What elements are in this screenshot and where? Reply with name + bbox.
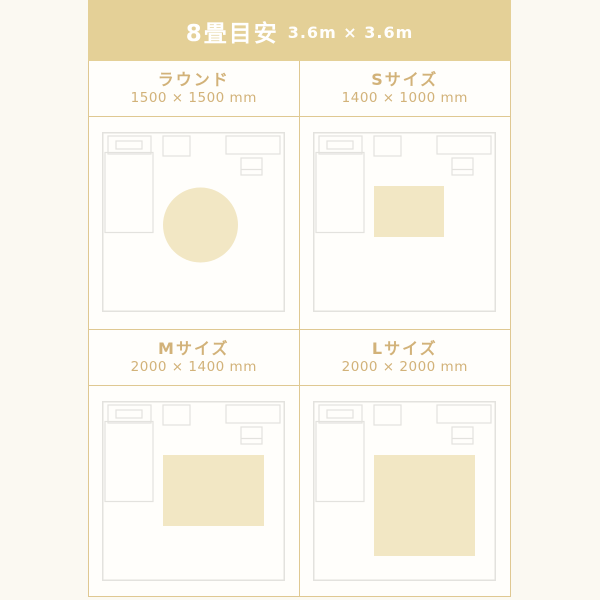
room-floorplan [102,132,285,312]
size-label: Sサイズ [371,71,438,89]
rug-shape-l [374,455,475,556]
page-background: { "header": { "title": "8畳目安", "room_dim… [0,0,600,600]
size-cell-round: ラウンド 1500 × 1500 mm [89,61,300,330]
rug-shape-round [163,188,238,263]
room-floorplan [313,132,496,312]
size-dimensions: 1400 × 1000 mm [342,90,468,106]
desk-shape [437,136,491,154]
desk-shape [226,405,280,423]
chair-shape [452,158,473,175]
size-label: Lサイズ [372,340,438,358]
cell-header-m: Mサイズ 2000 × 1400 mm [89,330,299,386]
headboard-shape [108,405,151,423]
chair-shape [241,158,262,175]
room-diagram-s [300,117,511,329]
chair-shape [241,427,262,444]
room-floorplan [102,401,285,581]
size-dimensions: 2000 × 2000 mm [342,359,468,375]
tatami-header-band: 8畳目安 3.6m × 3.6m [88,0,511,61]
cell-header-round: ラウンド 1500 × 1500 mm [89,61,299,117]
size-dimensions: 2000 × 1400 mm [131,359,257,375]
pillow-shape [116,410,142,418]
room-floorplan [313,401,496,581]
bed-shape [316,422,364,502]
size-label: ラウンド [158,71,230,89]
pillow-shape [327,141,353,149]
rug-shape-s [374,186,444,237]
size-cell-s: Sサイズ 1400 × 1000 mm [300,61,511,330]
cabinet-shape [163,136,190,156]
rug-size-guide-panel: 8畳目安 3.6m × 3.6m ラウンド 1500 × 1500 mm Sサイ… [88,0,511,597]
room-diagram-m [89,386,299,596]
size-dimensions: 1500 × 1500 mm [131,90,257,106]
desk-shape [437,405,491,423]
headboard-shape [108,136,151,154]
headboard-shape [319,405,362,423]
size-cell-m: Mサイズ 2000 × 1400 mm [89,330,300,596]
pillow-shape [327,410,353,418]
cabinet-shape [163,405,190,425]
cabinet-shape [374,405,401,425]
chair-shape [452,427,473,444]
room-dimensions-text: 3.6m × 3.6m [288,20,414,42]
tatami-size-title: 8畳目安 [186,14,279,48]
bed-shape [105,422,153,502]
headboard-shape [319,136,362,154]
bed-shape [105,153,153,233]
size-label: Mサイズ [158,340,229,358]
rug-shape-m [163,455,264,526]
pillow-shape [116,141,142,149]
bed-shape [316,153,364,233]
size-grid: ラウンド 1500 × 1500 mm Sサイズ 1400 × 1000 mm … [88,61,511,597]
cabinet-shape [374,136,401,156]
cell-header-s: Sサイズ 1400 × 1000 mm [300,61,511,117]
cell-header-l: Lサイズ 2000 × 2000 mm [300,330,511,386]
size-cell-l: Lサイズ 2000 × 2000 mm [300,330,511,596]
room-diagram-l [300,386,511,596]
room-diagram-round [89,117,299,329]
desk-shape [226,136,280,154]
